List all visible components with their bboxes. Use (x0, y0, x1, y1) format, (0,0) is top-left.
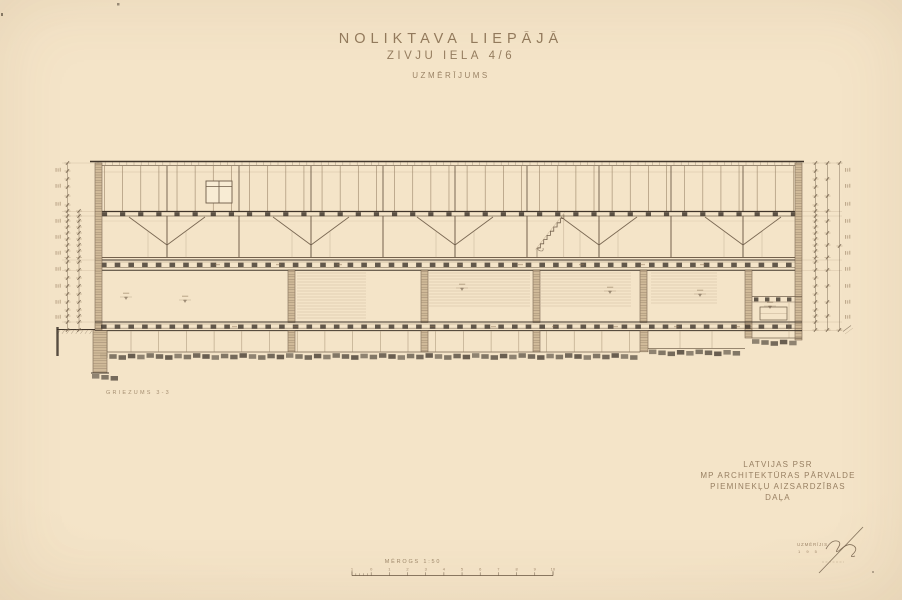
svg-text:6: 6 (479, 566, 482, 571)
left-dimension-chain (56, 161, 96, 332)
agency-line-1: LATVIJAS PSR (668, 459, 888, 470)
section-caption: GRIEZUMS 3-3 (106, 390, 171, 396)
svg-text:2: 2 (406, 566, 409, 571)
drawing-title: NOLIKTAVA LIEPĀJĀ (339, 31, 563, 47)
signature-flourish (819, 527, 863, 573)
svg-text:7: 7 (497, 566, 500, 571)
section-drawing: 1012345678910 (0, 0, 902, 600)
agency-line-4: DAĻA (668, 492, 888, 503)
svg-text:9: 9 (534, 566, 537, 571)
scale-bar: 1012345678910 (351, 566, 556, 575)
svg-text:8: 8 (515, 566, 518, 571)
svg-text:10: 10 (551, 566, 556, 571)
right-dimension-chain (802, 161, 853, 334)
drawing-address: ZIVJU IELĀ 4/6 (339, 50, 563, 62)
svg-text:4: 4 (443, 566, 446, 571)
svg-text:5: 5 (461, 566, 464, 571)
svg-text:3: 3 (425, 566, 428, 571)
agency-line-3: PIEMINEKĻU AIZSARDZĪBAS (668, 481, 888, 492)
svg-text:0: 0 (370, 566, 373, 571)
svg-text:1: 1 (388, 566, 391, 571)
agency-block: LATVIJAS PSR MP ARCHITEKTŪRAS PĀRVALDE P… (668, 459, 888, 503)
agency-line-2: MP ARCHITEKTŪRAS PĀRVALDE (668, 470, 888, 481)
title-block: NOLIKTAVA LIEPĀJĀ ZIVJU IELĀ 4/6 UZMĒRĪJ… (339, 31, 563, 80)
svg-text:1: 1 (351, 566, 354, 571)
survey-year: 1 9 5 (798, 549, 819, 554)
drawing-sheet: 1012345678910 NOLIKTAVA LIEPĀJĀ ZIVJU IE… (0, 0, 902, 600)
surveyor-label: UZMĒRĪJIS (797, 542, 828, 547)
scale-label: MĒROGS 1:50 (385, 559, 441, 565)
drawing-type-label: UZMĒRĪJUMS (339, 71, 563, 80)
